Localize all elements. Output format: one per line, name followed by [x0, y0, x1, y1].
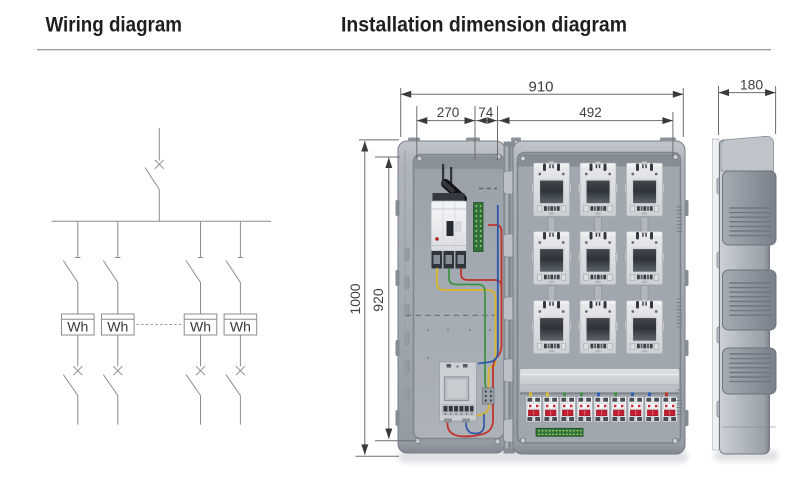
svg-text:Wh: Wh [230, 319, 251, 335]
svg-text:Wh: Wh [190, 319, 211, 335]
svg-text:910: 910 [528, 78, 553, 95]
svg-text:74: 74 [478, 105, 494, 120]
svg-text:Wh: Wh [107, 319, 128, 335]
svg-text:1000: 1000 [347, 283, 363, 314]
svg-text:Wiring diagram: Wiring diagram [46, 13, 183, 37]
svg-text:Installation dimension diagram: Installation dimension diagram [341, 13, 627, 37]
svg-text:270: 270 [437, 105, 460, 120]
svg-text:Wh: Wh [67, 319, 88, 335]
svg-text:492: 492 [579, 105, 602, 120]
svg-text:180: 180 [740, 77, 764, 93]
svg-text:920: 920 [370, 288, 386, 312]
